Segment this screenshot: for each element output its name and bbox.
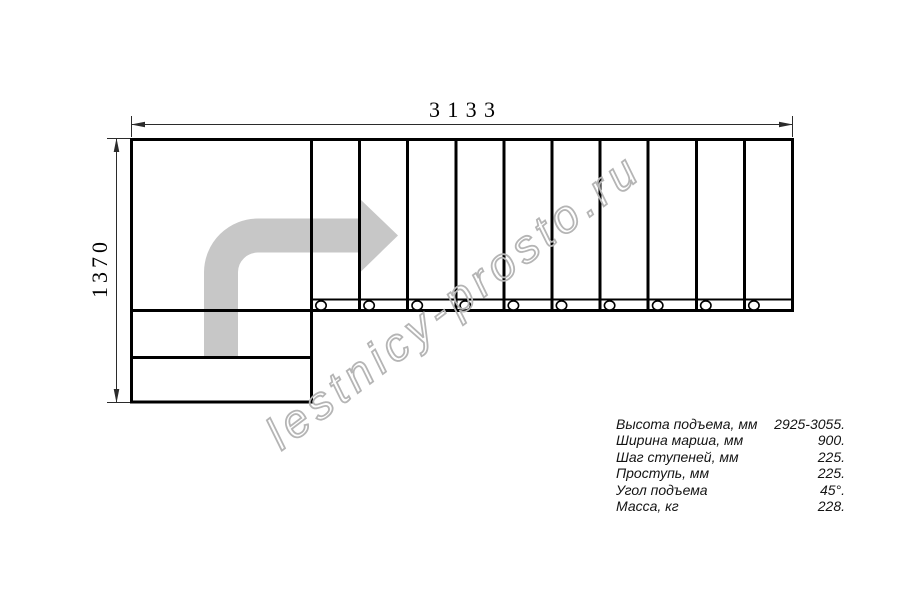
spec-value: 2925-3055. (774, 416, 845, 432)
direction-arrow-body (221, 236, 361, 358)
staircase-drawing-page: 3133 1370 lestnicy-prosto.ru Высота подъ… (0, 0, 900, 600)
spec-value: 225. (818, 465, 845, 481)
spec-row-tread-depth: Проступь, мм 225. (616, 465, 845, 481)
spec-row-height: Высота подъема, мм 2925-3055. (616, 416, 845, 432)
tread-support-circle (316, 301, 326, 310)
tread-support-circle (556, 301, 566, 310)
spec-value: 45°. (820, 482, 845, 498)
tread-lines (360, 138, 745, 312)
dim-arrow-left-icon (131, 122, 145, 128)
spec-label: Угол подъема (616, 482, 708, 498)
spec-row-angle: Угол подъема 45°. (616, 482, 845, 498)
tread-support-circle (653, 301, 663, 310)
direction-arrow-head (360, 199, 398, 273)
spec-value: 900. (818, 432, 845, 448)
tread-support-circle (364, 301, 374, 310)
spec-label: Масса, кг (616, 498, 679, 514)
spec-label: Ширина марша, мм (616, 432, 743, 448)
dim-arrow-down-icon (114, 389, 120, 403)
tread-support-circle (508, 301, 518, 310)
tread-support-circle (701, 301, 711, 310)
spec-table: Высота подъема, мм 2925-3055. Ширина мар… (616, 416, 845, 514)
spec-row-flight-width: Ширина марша, мм 900. (616, 432, 845, 448)
left-dimension-label: 1370 (87, 242, 112, 298)
tread-support-circle (604, 301, 614, 310)
dim-arrow-up-icon (114, 138, 120, 152)
spec-row-step-pitch: Шаг ступеней, мм 225. (616, 449, 845, 465)
spec-row-mass: Масса, кг 228. (616, 498, 845, 514)
spec-label: Высота подъема, мм (616, 416, 758, 432)
top-dimension-label: 3133 (429, 97, 495, 122)
spec-value: 225. (818, 449, 845, 465)
watermark-text: lestnicy-prosto.ru (256, 144, 647, 459)
dim-arrow-right-icon (779, 122, 793, 128)
spec-label: Шаг ступеней, мм (616, 449, 739, 465)
tread-support-circles (316, 301, 759, 310)
tread-support-circle (749, 301, 759, 310)
spec-label: Проступь, мм (616, 465, 709, 481)
spec-value: 228. (818, 498, 845, 514)
